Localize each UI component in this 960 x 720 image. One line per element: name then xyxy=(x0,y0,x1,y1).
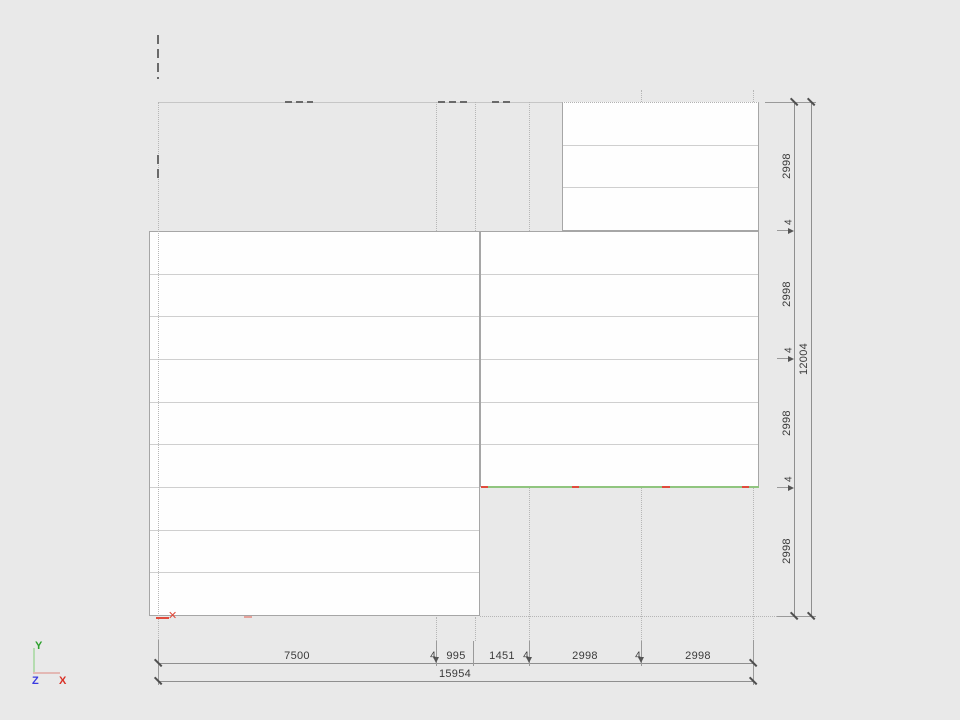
construction-line xyxy=(753,488,754,641)
hidden-line-segment xyxy=(157,35,159,79)
cad-viewport: ✕ 7500 4 995 145 xyxy=(0,0,960,720)
dim-label[interactable]: 4 xyxy=(635,651,641,662)
hidden-line-segment xyxy=(285,101,313,103)
dim-label[interactable]: 4 xyxy=(784,347,795,353)
dimension-arrow-right xyxy=(788,485,794,491)
dim-label[interactable]: 2998 xyxy=(781,410,793,436)
panel-row[interactable] xyxy=(481,360,758,403)
dim-total-label[interactable]: 12004 xyxy=(798,343,810,375)
panel-row[interactable] xyxy=(563,103,758,146)
dimension-arrow-right xyxy=(788,356,794,362)
hidden-line-segment xyxy=(492,101,511,103)
dim-label[interactable]: 4 xyxy=(523,651,529,662)
red-tick-mark xyxy=(662,486,670,488)
dim-total-label[interactable]: 15954 xyxy=(439,668,471,680)
dim-label[interactable]: 4 xyxy=(784,219,795,225)
panel-row[interactable] xyxy=(563,146,758,189)
panel-row[interactable] xyxy=(150,445,479,488)
dim-label[interactable]: 4 xyxy=(784,476,795,482)
panel-block-top-right[interactable] xyxy=(562,102,759,231)
dim-label[interactable]: 4 xyxy=(430,651,436,662)
panel-block-middle-right[interactable] xyxy=(480,231,759,487)
dimension-arrow-right xyxy=(788,228,794,234)
construction-line xyxy=(475,617,476,641)
green-edge-line[interactable] xyxy=(481,486,759,488)
extension-line xyxy=(765,102,816,103)
panel-row[interactable] xyxy=(150,275,479,318)
dim-label[interactable]: 2998 xyxy=(781,281,793,307)
ucs-x-axis-line xyxy=(33,672,60,674)
red-x-marker: ✕ xyxy=(168,611,177,622)
panel-row[interactable] xyxy=(150,360,479,403)
ucs-x-label: X xyxy=(59,675,66,687)
construction-line xyxy=(641,488,642,641)
panel-row[interactable] xyxy=(481,403,758,446)
construction-line xyxy=(529,488,530,641)
panel-row[interactable] xyxy=(563,188,758,230)
panel-block-left[interactable] xyxy=(149,231,480,616)
panel-row[interactable] xyxy=(481,232,758,275)
construction-line xyxy=(436,102,437,231)
panel-row[interactable] xyxy=(481,445,758,487)
red-tick-mark xyxy=(244,616,252,618)
red-tick-mark xyxy=(572,486,579,488)
ucs-z-label: Z xyxy=(32,675,39,687)
extension-line xyxy=(473,641,474,666)
construction-line xyxy=(480,616,777,617)
dim-label[interactable]: 995 xyxy=(446,650,465,662)
dim-label[interactable]: 2998 xyxy=(781,153,793,179)
panel-row[interactable] xyxy=(481,275,758,318)
construction-line xyxy=(158,102,159,640)
dim-label[interactable]: 2998 xyxy=(781,538,793,564)
construction-line xyxy=(436,617,437,641)
red-tick-mark xyxy=(742,486,749,488)
dim-label[interactable]: 2998 xyxy=(572,650,598,662)
dim-label[interactable]: 1451 xyxy=(489,650,515,662)
construction-line xyxy=(753,90,754,102)
panel-row[interactable] xyxy=(481,317,758,360)
panel-row[interactable] xyxy=(150,573,479,615)
construction-line xyxy=(641,90,642,102)
red-tick-mark xyxy=(481,486,488,488)
panel-row[interactable] xyxy=(150,488,479,531)
construction-line xyxy=(529,102,530,231)
dimension-line-bottom-segments[interactable] xyxy=(158,663,754,664)
dim-label[interactable]: 7500 xyxy=(284,650,310,662)
panel-row[interactable] xyxy=(150,232,479,275)
dimension-line-right-total[interactable] xyxy=(811,102,812,616)
dim-label[interactable]: 2998 xyxy=(685,650,711,662)
dimension-line-bottom-total[interactable] xyxy=(158,681,754,682)
panel-row[interactable] xyxy=(150,403,479,446)
construction-line xyxy=(475,102,476,231)
hidden-line-segment xyxy=(438,101,468,103)
panel-row[interactable] xyxy=(150,531,479,574)
ucs-y-label: Y xyxy=(35,640,42,652)
panel-row[interactable] xyxy=(150,317,479,360)
dimension-line-right-segments[interactable] xyxy=(794,102,795,616)
hidden-line-segment xyxy=(157,155,159,179)
